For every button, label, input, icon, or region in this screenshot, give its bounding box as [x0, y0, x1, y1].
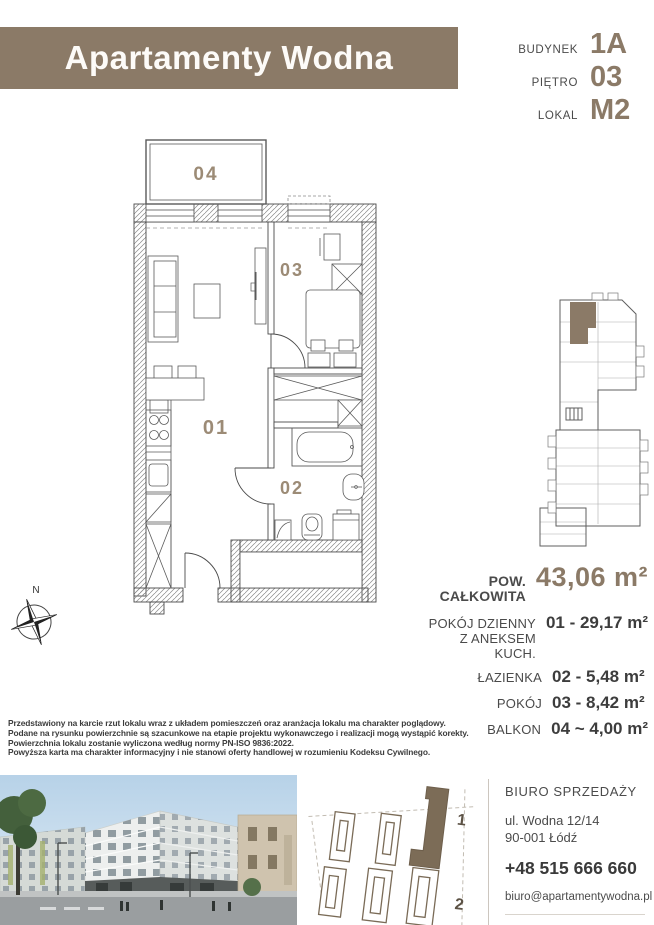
sales-office-block: BIURO SPRZEDAŻY ul. Wodna 12/14 90-001 Ł… — [505, 784, 654, 925]
building-value: 1A — [590, 28, 644, 61]
floor-row: PIĘTRO 03 — [464, 61, 644, 94]
coffee-table — [194, 284, 220, 318]
address-line-1: ul. Wodna 12/14 — [505, 813, 599, 828]
total-area-value: 43,06 m² — [536, 562, 648, 593]
brand-title: Apartamenty Wodna — [65, 39, 394, 77]
sales-office-label: BIURO SPRZEDAŻY — [505, 784, 654, 799]
sales-phone: +48 515 666 660 — [505, 858, 654, 879]
address-line-2: 90-001 Łódź — [505, 830, 577, 845]
key-plan-interior-lines — [540, 302, 640, 534]
area-row-bathroom: ŁAZIENKA 02 - 5,48 m² — [418, 667, 648, 687]
area-row-living: POKÓJ DZIENNY Z ANEKSEM KUCH. 01 - 29,17… — [418, 613, 648, 661]
street — [0, 891, 297, 925]
bathroom-area-value: 02 - 5,48 m² — [552, 667, 645, 687]
site-label-2: 2 — [454, 896, 465, 914]
legal-disclaimer: Przedstawiony na karcie rzut lokalu wraz… — [8, 719, 482, 758]
area-summary: POW. CAŁKOWITA 43,06 m² POKÓJ DZIENNY Z … — [418, 562, 648, 745]
living-area-value: 01 - 29,17 m² — [546, 613, 648, 633]
compass-n-label: N — [32, 585, 39, 596]
site-building-1 — [409, 786, 449, 869]
service-space — [240, 552, 362, 588]
washbasin — [343, 474, 364, 500]
building-label: BUDYNEK — [518, 44, 578, 56]
distant-buildings — [0, 827, 85, 899]
windows — [146, 204, 330, 222]
footer-divider — [488, 779, 489, 925]
bedroom-furniture — [306, 234, 362, 367]
floor-plan: 04 03 01 02 — [130, 138, 382, 690]
contact-divider — [505, 914, 645, 915]
brand-banner: Apartamenty Wodna — [0, 27, 458, 89]
tv-unit — [251, 248, 266, 324]
highlighted-unit — [570, 302, 596, 344]
building-key-plan — [536, 290, 650, 564]
floor-value: 03 — [590, 61, 644, 94]
floor-label: PIĘTRO — [532, 77, 578, 89]
unit-value: M2 — [590, 94, 644, 127]
balcony-area-value: 04 ~ 4,00 m² — [551, 719, 648, 739]
room-02-label: 02 — [280, 478, 304, 498]
living-label-line1: POKÓJ DZIENNY — [429, 616, 536, 631]
toilet — [302, 514, 322, 540]
sofa — [148, 256, 178, 342]
offer-card: Apartamenty Wodna BUDYNEK 1A PIĘTRO 03 L… — [0, 0, 654, 925]
site-plan: 1 2 — [299, 775, 487, 925]
dining-set — [146, 366, 204, 413]
shower-corner — [275, 520, 291, 540]
washing-machine — [333, 510, 359, 540]
room-01-label: 01 — [203, 417, 229, 439]
site-label-1: 1 — [456, 812, 467, 830]
area-row-room: POKÓJ 03 - 8,42 m² — [418, 693, 648, 713]
bathtub — [292, 428, 362, 466]
bathroom-label: ŁAZIENKA — [418, 670, 542, 685]
sales-office-address: ul. Wodna 12/14 90-001 Łódź — [505, 812, 654, 846]
total-area-label: POW. CAŁKOWITA — [418, 574, 526, 604]
building-row: BUDYNEK 1A — [464, 28, 644, 61]
hall-wardrobes — [274, 376, 362, 426]
kitchen — [146, 400, 171, 588]
room-area-value: 03 - 8,42 m² — [552, 693, 645, 713]
room-label: POKÓJ — [418, 696, 542, 711]
window-sill-dashed — [288, 196, 330, 204]
disclaimer-line-4: Powyższa karta ma charakter informacyjny… — [8, 748, 482, 758]
unit-info: BUDYNEK 1A PIĘTRO 03 LOKAL M2 — [464, 28, 644, 127]
room-03-label: 03 — [280, 260, 304, 280]
total-area-row: POW. CAŁKOWITA 43,06 m² — [418, 562, 648, 604]
unit-row: LOKAL M2 — [464, 94, 644, 127]
unit-label: LOKAL — [538, 110, 578, 122]
building-photo — [0, 775, 297, 925]
living-label-line2: Z ANEKSEM KUCH. — [460, 631, 536, 661]
sales-email: biuro@apartamentywodna.pl — [505, 891, 654, 903]
compass-icon: N — [6, 582, 62, 648]
room-04-label: 04 — [193, 164, 218, 185]
